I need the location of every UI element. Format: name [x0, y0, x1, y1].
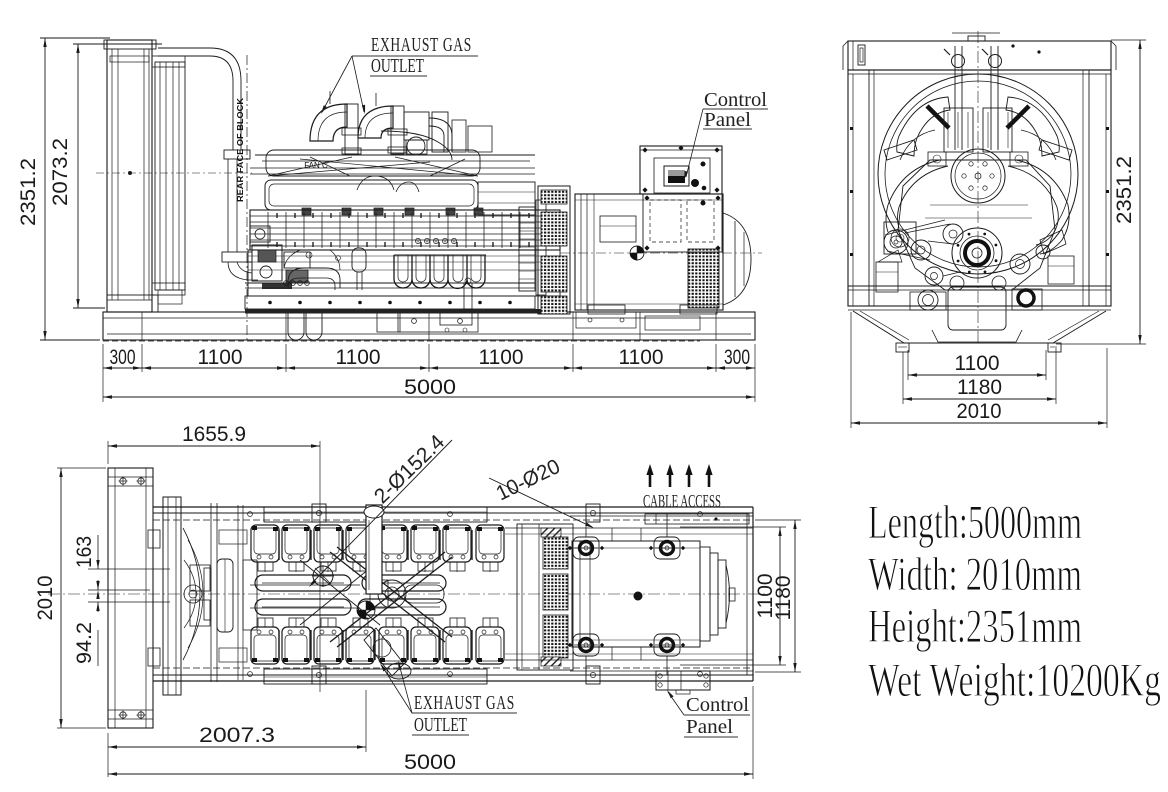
svg-text:2351.2: 2351.2: [17, 158, 40, 226]
svg-text:Panel: Panel: [704, 109, 751, 131]
svg-text:EXHAUST GAS: EXHAUST GAS: [371, 34, 472, 56]
svg-text:1100: 1100: [198, 346, 243, 369]
svg-text:94.2: 94.2: [73, 622, 96, 664]
svg-text:Control: Control: [704, 89, 767, 111]
svg-text:Control: Control: [686, 694, 749, 716]
svg-text:300: 300: [110, 346, 136, 369]
svg-text:300: 300: [724, 346, 750, 369]
svg-text:2073.2: 2073.2: [49, 138, 72, 206]
svg-text:1180: 1180: [772, 576, 795, 621]
svg-text:EXHAUST GAS: EXHAUST GAS: [414, 692, 515, 714]
svg-text:Width: 2010mm: Width: 2010mm: [868, 548, 1082, 601]
svg-text:1100: 1100: [955, 352, 1000, 375]
svg-text:FAN C: FAN C: [304, 161, 328, 170]
svg-text:2351.2: 2351.2: [1113, 156, 1136, 224]
svg-text:Panel: Panel: [686, 716, 733, 738]
svg-text:1180: 1180: [957, 376, 1002, 399]
svg-text:1655.9: 1655.9: [182, 423, 246, 446]
svg-text:2010: 2010: [34, 576, 57, 621]
svg-text:OUTLET: OUTLET: [371, 55, 424, 77]
svg-text:OUTLET: OUTLET: [414, 714, 467, 736]
svg-text:5000: 5000: [404, 376, 456, 399]
svg-text:Height:2351mm: Height:2351mm: [868, 600, 1082, 653]
svg-text:2010: 2010: [957, 400, 1002, 423]
svg-text:1100: 1100: [479, 346, 524, 369]
svg-text:REAR FACE OF BLOCK: REAR FACE OF BLOCK: [236, 98, 245, 202]
svg-text:2007.3: 2007.3: [199, 724, 275, 747]
svg-text:Length:5000mm: Length:5000mm: [868, 496, 1082, 549]
svg-text:5000: 5000: [404, 751, 456, 774]
svg-text:CABLE ACCESS: CABLE ACCESS: [643, 491, 721, 511]
svg-text:Wet Weight:10200Kg: Wet Weight:10200Kg: [868, 654, 1161, 707]
svg-text:1100: 1100: [619, 346, 664, 369]
svg-text:1100: 1100: [336, 346, 381, 369]
svg-text:163: 163: [73, 536, 96, 568]
